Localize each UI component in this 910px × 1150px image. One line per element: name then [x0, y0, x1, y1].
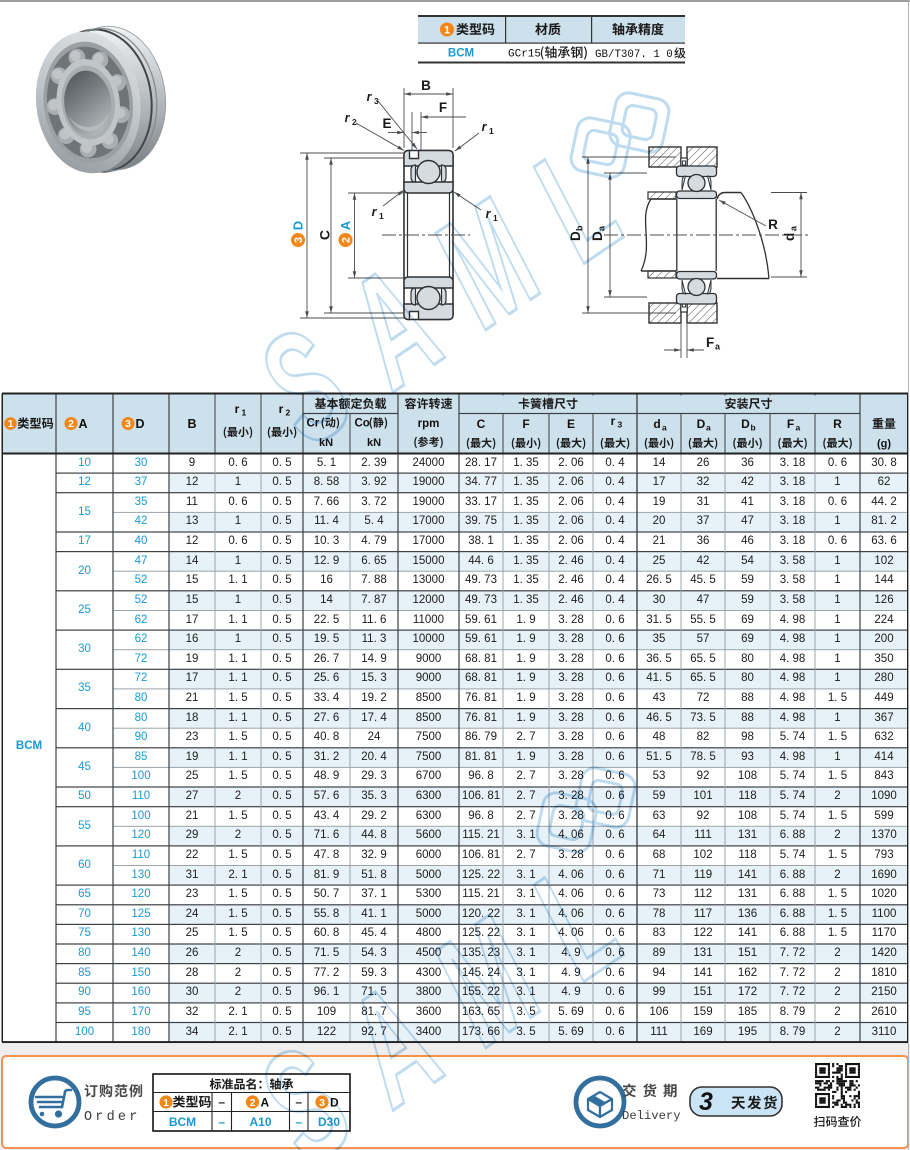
svg-text:D: D [697, 417, 706, 431]
svg-text:–: – [295, 1095, 302, 1109]
svg-text:1: 1 [242, 408, 247, 418]
svg-text:d: d [653, 417, 660, 431]
svg-text:3: 3 [618, 420, 623, 430]
svg-text:kN: kN [367, 437, 381, 449]
svg-text:1: 1 [8, 418, 14, 430]
svg-text:A10: A10 [249, 1115, 271, 1129]
svg-text:1: 1 [444, 25, 450, 37]
svg-text:2: 2 [286, 408, 291, 418]
svg-text:E: E [567, 417, 575, 431]
svg-text:F: F [787, 417, 794, 431]
svg-text:Cr: Cr [307, 418, 320, 430]
svg-text:rpm: rpm [418, 418, 440, 430]
svg-text:3: 3 [319, 1097, 325, 1109]
svg-text:BCM: BCM [448, 48, 474, 60]
svg-text:GCr15: GCr15 [508, 49, 541, 61]
svg-text:3: 3 [699, 1088, 713, 1116]
svg-text:kN: kN [319, 437, 333, 449]
svg-text:1: 1 [163, 1097, 169, 1109]
svg-text:2: 2 [68, 418, 74, 430]
svg-text:(g): (g) [877, 438, 891, 450]
svg-text:GB/T307. 1 0: GB/T307. 1 0 [595, 49, 673, 61]
svg-text:D: D [136, 417, 145, 431]
svg-text:B: B [187, 417, 196, 431]
svg-text:a: a [796, 423, 801, 433]
svg-text:F: F [522, 417, 529, 431]
svg-text:b: b [751, 423, 756, 433]
svg-text:Co: Co [355, 418, 370, 430]
svg-text:BCM: BCM [169, 1115, 196, 1129]
svg-text:A: A [79, 417, 88, 431]
svg-text:A: A [261, 1096, 270, 1110]
svg-text:a: a [706, 423, 711, 433]
svg-text:r: r [611, 414, 616, 428]
svg-text:–: – [218, 1095, 225, 1109]
svg-text:r: r [235, 402, 240, 416]
svg-text:D30: D30 [318, 1115, 340, 1129]
svg-text:–: – [295, 1115, 302, 1129]
svg-text:–: – [218, 1115, 225, 1129]
svg-text:Order: Order [84, 1110, 141, 1125]
svg-text:D: D [330, 1096, 339, 1110]
svg-text:2: 2 [250, 1097, 256, 1109]
svg-text:r: r [279, 402, 284, 416]
svg-text:D: D [741, 417, 750, 431]
svg-text:Delivery: Delivery [622, 1109, 681, 1123]
svg-text:a: a [662, 423, 667, 433]
svg-text:3: 3 [125, 418, 131, 430]
svg-text:R: R [833, 417, 842, 431]
svg-text:C: C [477, 417, 486, 431]
